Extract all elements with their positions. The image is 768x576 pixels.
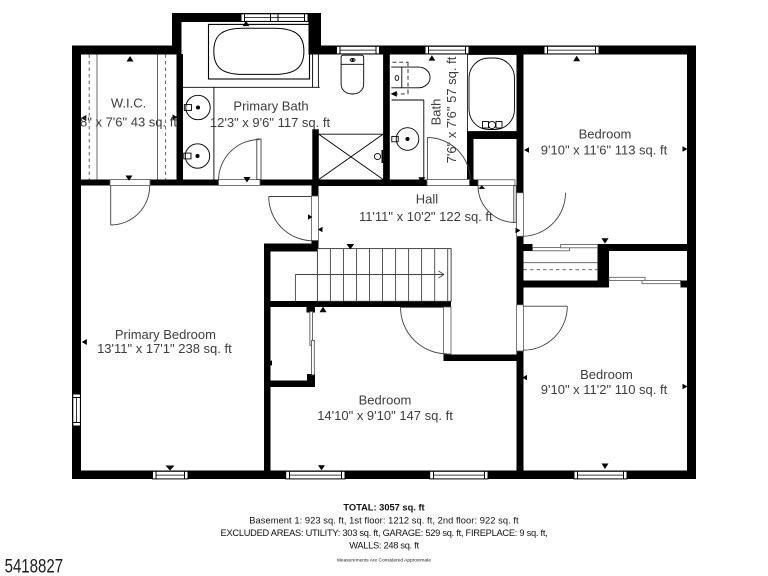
svg-text:9'10" x 11'2" 110 sq. ft: 9'10" x 11'2" 110 sq. ft: [541, 382, 668, 397]
svg-text:13'11" x 17'1" 238 sq. ft: 13'11" x 17'1" 238 sq. ft: [97, 341, 232, 356]
svg-text:Measurements Are Considered Ap: Measurements Are Considered Approximate: [337, 558, 431, 564]
svg-text:9'10" x 11'6" 113 sq. ft: 9'10" x 11'6" 113 sq. ft: [541, 143, 668, 158]
svg-text:Primary Bedroom: Primary Bedroom: [115, 327, 216, 342]
svg-text:TOTAL: 3057 sq. ft: TOTAL: 3057 sq. ft: [343, 503, 424, 513]
svg-text:14'10" x 9'10" 147 sq. ft: 14'10" x 9'10" 147 sq. ft: [317, 408, 453, 423]
svg-text:Bedroom: Bedroom: [579, 127, 632, 142]
svg-text:Basement 1: 923 sq. ft, 1st fl: Basement 1: 923 sq. ft, 1st floor: 1212 …: [249, 516, 519, 526]
svg-text:Primary Bath: Primary Bath: [233, 99, 308, 114]
svg-text:W.I.C.: W.I.C.: [111, 96, 146, 111]
svg-text:Hall: Hall: [416, 192, 439, 207]
svg-text:EXCLUDED AREAS: UTILITY: 303 s: EXCLUDED AREAS: UTILITY: 303 sq. ft, GAR…: [221, 528, 548, 538]
svg-text:7'6" x 7'6" 57 sq. ft: 7'6" x 7'6" 57 sq. ft: [444, 56, 459, 163]
svg-text:WALLS: 248 sq. ft: WALLS: 248 sq. ft: [349, 540, 419, 550]
svg-text:8" x 7'6" 43 sq. ft: 8" x 7'6" 43 sq. ft: [80, 115, 177, 130]
svg-text:12'3" x 9'6" 117 sq. ft: 12'3" x 9'6" 117 sq. ft: [210, 115, 331, 130]
svg-text:Bath: Bath: [429, 99, 444, 126]
svg-text:11'11" x 10'2" 122 sq. ft: 11'11" x 10'2" 122 sq. ft: [359, 209, 493, 224]
svg-text:Bedroom: Bedroom: [359, 393, 412, 408]
svg-text:5418827: 5418827: [5, 557, 64, 576]
svg-text:Bedroom: Bedroom: [580, 367, 633, 382]
